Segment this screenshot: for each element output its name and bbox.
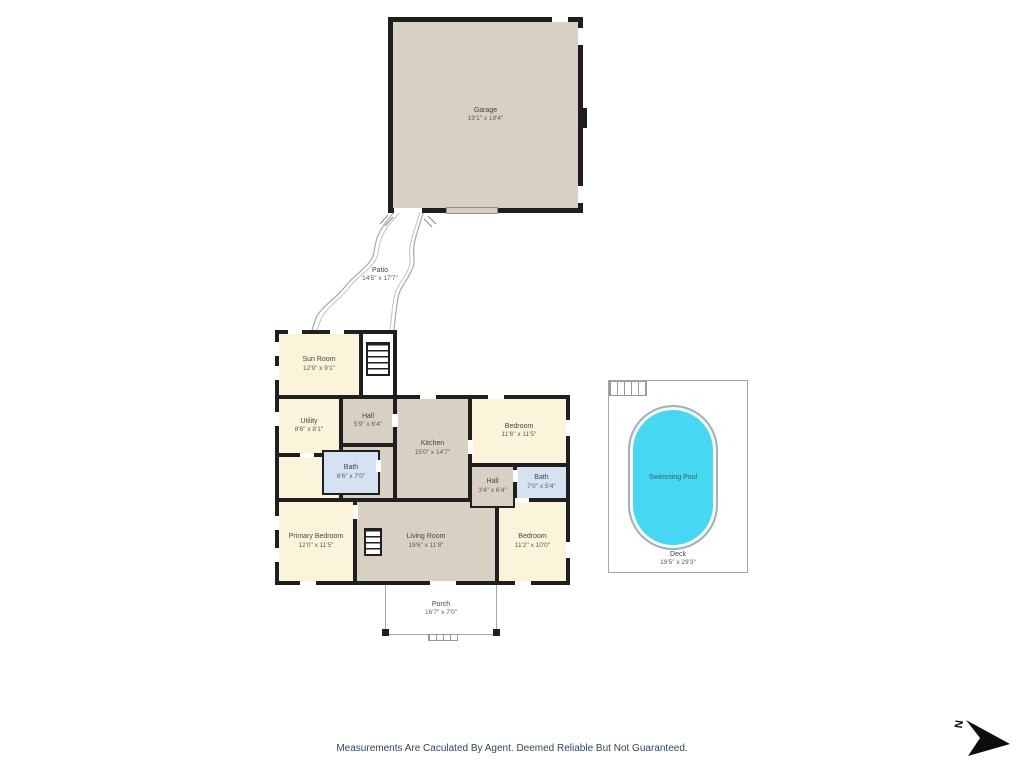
door-gap <box>515 498 529 503</box>
door-gap <box>468 440 473 454</box>
room-dims: 19'6" x 11'8" <box>407 542 446 551</box>
room-name: Kitchen <box>415 439 451 448</box>
room-porch: Porch 16'7" x 7'0" <box>385 583 497 635</box>
door-gap <box>392 414 398 427</box>
floor-plan-canvas: Patio 14'5" x 17'7" Garage 19'1" x 19'4"… <box>0 0 1024 768</box>
window-gap <box>275 342 279 356</box>
wall-segment <box>393 330 397 399</box>
window-gap <box>288 330 302 334</box>
room-dims: 5'9" x 6'4" <box>354 421 382 430</box>
door-jamb <box>580 108 587 128</box>
room-sun-room: Sun Room 12'9" x 9'1" <box>277 332 361 397</box>
disclaimer-text: Measurements Are Caculated By Agent. Dee… <box>0 743 1024 754</box>
room-bath-small: Bath 7'0" x 5'4" <box>515 465 568 500</box>
swimming-pool: Swimming Pool <box>628 405 718 550</box>
bath-main-label: Bath 8'6" x 7'0" <box>337 463 365 481</box>
room-dims: 8'6" x 7'0" <box>337 473 365 482</box>
room-dims: 11'6" x 11'5" <box>502 431 537 440</box>
room-dims: 19'5" x 29'3" <box>609 559 747 568</box>
window-gap <box>566 420 570 436</box>
room-bedroom-ne: Bedroom 11'6" x 11'5" <box>470 397 568 465</box>
bedroom-se-label: Bedroom 11'2" x 10'0" <box>515 532 550 550</box>
room-name: Hall <box>354 412 382 421</box>
room-dims: 19'1" x 19'4" <box>468 115 504 124</box>
hall-small-label: Hall 3'4" x 6'4" <box>478 477 506 495</box>
room-name: Sun Room <box>302 355 335 364</box>
room-name: Living Room <box>407 532 446 541</box>
room-dims: 15'0" x 14'7" <box>415 449 451 458</box>
porch-label: Porch 16'7" x 7'0" <box>425 600 457 618</box>
door-gap <box>430 581 456 585</box>
living-room-stairs <box>364 528 382 556</box>
room-dims: 16'7" x 7'0" <box>425 609 457 618</box>
window-gap <box>578 28 583 45</box>
room-bedroom-se: Bedroom 11'2" x 10'0" <box>497 500 568 583</box>
door-gap <box>513 470 518 482</box>
room-name: Hall <box>478 477 506 486</box>
room-name: Bedroom <box>502 422 537 431</box>
deck-label: Deck 19'5" x 29'3" <box>609 550 747 568</box>
garage-door <box>446 207 498 214</box>
swimming-pool-label: Swimming Pool <box>649 474 697 481</box>
window-gap <box>420 395 436 399</box>
window-gap <box>275 366 279 380</box>
room-dims: 3'4" x 6'4" <box>478 487 506 496</box>
entry-stairs <box>366 342 390 376</box>
window-gap <box>275 548 279 562</box>
window-gap <box>578 186 583 203</box>
door-gap <box>353 505 358 519</box>
primary-bedroom-label: Primary Bedroom 12'0" x 11'5" <box>289 532 343 550</box>
porch-post <box>493 629 500 636</box>
room-dims: 12'9" x 9'1" <box>302 365 335 374</box>
room-name: Utility <box>295 417 323 426</box>
utility-label: Utility 8'6" x 8'1" <box>295 417 323 435</box>
bath-small-label: Bath 7'0" x 5'4" <box>527 473 555 491</box>
porch-post <box>382 629 389 636</box>
room-utility: Utility 8'6" x 8'1" <box>277 397 341 455</box>
door-gap <box>376 460 381 472</box>
porch-steps <box>428 634 458 641</box>
room-primary-bedroom: Primary Bedroom 12'0" x 11'5" <box>277 500 355 583</box>
window-gap <box>330 330 344 334</box>
room-name: Garage <box>468 106 504 115</box>
room-hall: Hall 5'9" x 6'4" <box>341 397 395 445</box>
north-arrow: N <box>952 712 1016 766</box>
door-gap <box>394 208 422 213</box>
deck-steps <box>609 381 647 396</box>
room-name: Porch <box>425 600 457 609</box>
room-name: Bedroom <box>515 532 550 541</box>
door-gap <box>300 453 314 458</box>
window-gap <box>552 17 568 22</box>
window-gap <box>515 581 531 585</box>
sun-room-label: Sun Room 12'9" x 9'1" <box>302 355 335 373</box>
room-dims: 8'6" x 8'1" <box>295 426 323 435</box>
room-name: Bath <box>337 463 365 472</box>
window-gap <box>566 542 570 558</box>
room-name: Bath <box>527 473 555 482</box>
window-gap <box>300 581 316 585</box>
room-name: Primary Bedroom <box>289 532 343 541</box>
window-gap <box>275 412 279 426</box>
hall-label: Hall 5'9" x 6'4" <box>354 412 382 430</box>
garage-label: Garage 19'1" x 19'4" <box>468 106 504 124</box>
room-hall-small: Hall 3'4" x 6'4" <box>470 465 515 508</box>
kitchen-label: Kitchen 15'0" x 14'7" <box>415 439 451 457</box>
room-dims: 12'0" x 11'5" <box>289 542 343 551</box>
living-room-label: Living Room 19'6" x 11'8" <box>407 532 446 550</box>
room-dims: 11'2" x 10'0" <box>515 542 550 551</box>
room-garage: Garage 19'1" x 19'4" <box>388 17 583 213</box>
window-gap <box>275 516 279 530</box>
room-bath-main: Bath 8'6" x 7'0" <box>322 450 380 495</box>
room-dims: 7'0" x 5'4" <box>527 483 555 492</box>
north-arrow-icon <box>952 712 1016 766</box>
bedroom-ne-label: Bedroom 11'6" x 11'5" <box>502 422 537 440</box>
room-kitchen: Kitchen 15'0" x 14'7" <box>395 397 470 500</box>
room-name: Deck <box>609 550 747 559</box>
window-gap <box>488 395 504 399</box>
patio-walkway <box>280 208 440 338</box>
